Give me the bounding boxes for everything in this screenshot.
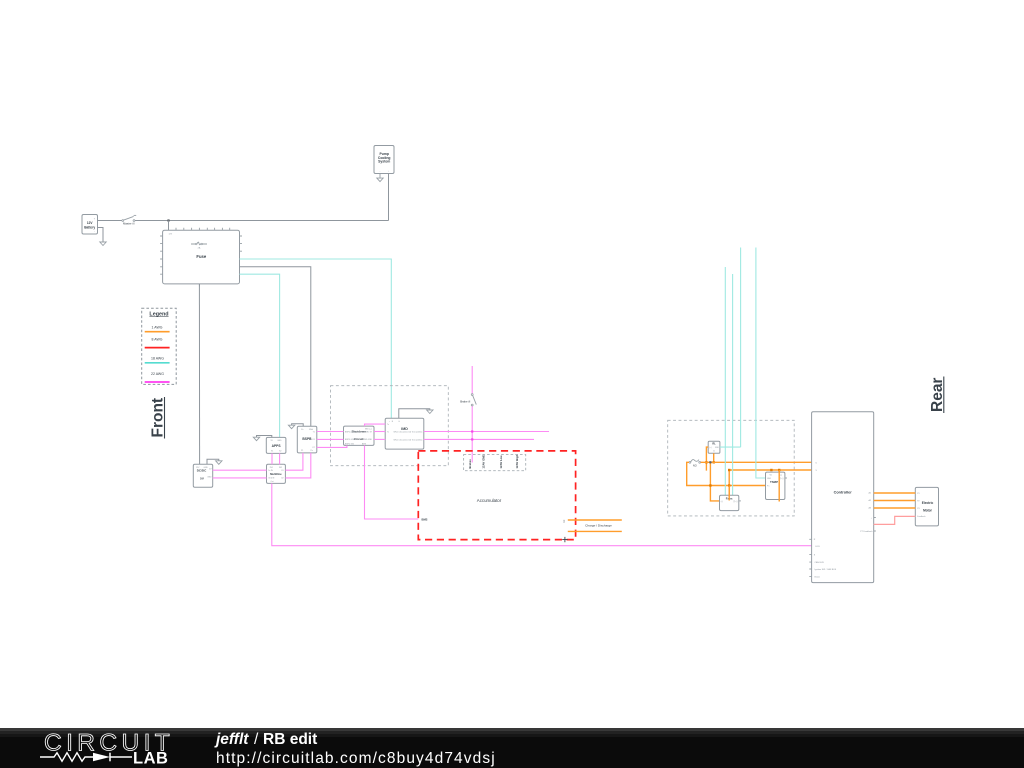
svg-text:RL: RL: [712, 442, 716, 445]
svg-text:Feedback: Feedback: [917, 516, 925, 518]
svg-text:Ignition SW / CAN BUS: Ignition SW / CAN BUS: [815, 568, 837, 571]
svg-text:P3: P3: [917, 508, 919, 510]
svg-text:K1: K1: [312, 439, 314, 441]
svg-text:P1: P1: [301, 450, 303, 452]
svg-text:BSPD GND: BSPD GND: [345, 439, 356, 441]
svg-text:ECU: ECU: [816, 546, 821, 548]
svg-text:(+): (+): [563, 519, 565, 522]
svg-text:GND: GND: [277, 440, 282, 442]
svg-text:TSMP: TSMP: [770, 480, 778, 484]
svg-text:RB edit: RB edit: [263, 731, 317, 748]
svg-text:12AV High: 12AV High: [515, 454, 519, 468]
svg-text:IMD (+): IMD (+): [365, 428, 372, 430]
svg-text:When disconnected Text (within: When disconnected Text (within): [394, 438, 423, 441]
svg-text:18 AWG: 18 AWG: [151, 357, 164, 361]
svg-text:Ts: Ts: [387, 424, 389, 426]
svg-text:Motor: Motor: [923, 508, 933, 512]
svg-text:System: System: [378, 160, 390, 164]
svg-text:http://circuitlab.com/c8buy4d7: http://circuitlab.com/c8buy4d74vdsj: [216, 750, 496, 767]
svg-text:O1: O1: [281, 470, 284, 472]
svg-text:1 AWG: 1 AWG: [152, 326, 163, 330]
svg-text:DC/DC: DC/DC: [197, 469, 207, 473]
svg-text:/: /: [254, 731, 259, 748]
svg-text:IN2: IN2: [279, 467, 282, 469]
svg-text:K7: K7: [312, 447, 314, 449]
svg-text:NO: NO: [693, 464, 697, 467]
svg-text:BMS: BMS: [422, 517, 428, 521]
svg-text:Brake: Brake: [815, 575, 821, 578]
svg-text:Circuit: Circuit: [354, 437, 364, 441]
svg-text:Brakes: Brakes: [468, 459, 472, 469]
svg-text:APPS: APPS: [272, 444, 282, 448]
svg-text:PT Feedback: PT Feedback: [860, 531, 873, 533]
svg-text:BSPD (+5V): BSPD (+5V): [345, 431, 356, 433]
svg-text:LAB: LAB: [133, 750, 168, 768]
svg-text:5v IN: 5v IN: [268, 470, 273, 472]
svg-text:BSPD SIG: BSPD SIG: [345, 443, 354, 445]
svg-text:5V: 5V: [200, 477, 204, 481]
svg-text:IMD ST: IMD ST: [366, 431, 373, 433]
svg-text:Charge / Discharge: Charge / Discharge: [585, 524, 612, 528]
svg-text:12AV GND: 12AV GND: [482, 455, 486, 469]
svg-text:P2: P2: [917, 501, 919, 503]
svg-text:P1: P1: [917, 493, 919, 495]
svg-text:Out: Out: [271, 480, 275, 483]
svg-text:Electric: Electric: [922, 501, 934, 505]
svg-text:When disconnected Text (within: When disconnected Text (within): [394, 430, 423, 433]
svg-text:8 AWG: 8 AWG: [152, 338, 163, 342]
svg-text:GND: GND: [207, 476, 212, 478]
svg-text:(+): (+): [721, 501, 724, 503]
svg-text:Brake i/l: Brake i/l: [460, 400, 470, 404]
svg-text:22 AWG: 22 AWG: [151, 372, 164, 376]
svg-text:S2: S2: [279, 451, 281, 453]
svg-text:O2: O2: [281, 478, 284, 480]
svg-text:(?) (-): (?) (-): [733, 501, 738, 503]
svg-text:jefflt: jefflt: [214, 731, 249, 748]
svg-text:MultiOne: MultiOne: [270, 472, 282, 476]
svg-text:Legend: Legend: [149, 311, 168, 317]
svg-text:Fuse: Fuse: [196, 254, 206, 259]
svg-text:Tx: Tx: [387, 431, 389, 433]
svg-text:Vin: Vin: [770, 474, 773, 476]
svg-text:CAN BUS: CAN BUS: [815, 561, 825, 564]
svg-text:BSPB: BSPB: [302, 437, 312, 441]
svg-text:Master i/l: Master i/l: [123, 221, 135, 225]
svg-text:T1: T1: [313, 431, 315, 433]
svg-text:Gnd IN: Gnd IN: [268, 478, 275, 480]
svg-text:12AV Low: 12AV Low: [499, 455, 503, 469]
svg-text:IN1: IN1: [270, 467, 273, 469]
svg-text:Controller: Controller: [834, 491, 853, 495]
svg-text:S1: S1: [271, 451, 273, 453]
svg-text:Accumulator: Accumulator: [477, 498, 502, 503]
svg-text:Po: Po: [310, 450, 312, 452]
svg-text:(+): (+): [709, 447, 712, 449]
svg-text:12V: 12V: [87, 221, 94, 225]
svg-text:GND: GND: [715, 447, 720, 449]
svg-text:IMD GND: IMD GND: [364, 439, 373, 441]
